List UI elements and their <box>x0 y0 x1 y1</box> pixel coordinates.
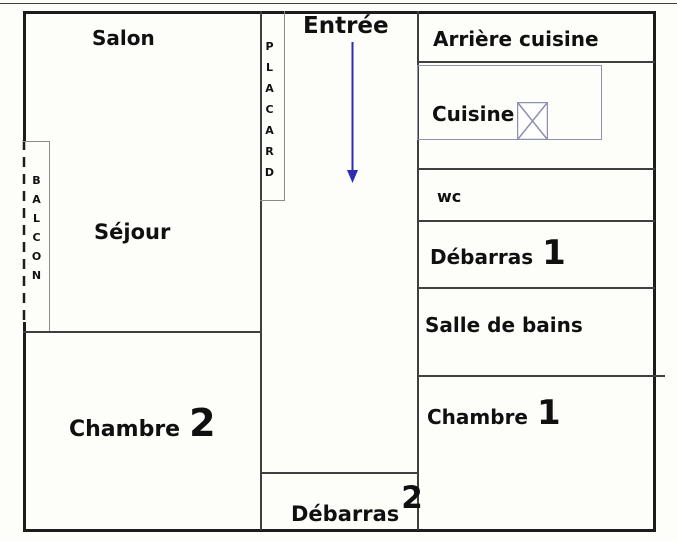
room-label-salle-de-bains: Salle de bains <box>425 315 583 335</box>
floor-plan: Salon Entrée PLACARD BALCON Séjour Chamb… <box>0 0 677 541</box>
room-label-balcon: BALCON <box>31 174 42 296</box>
hallway-left-wall <box>260 11 262 530</box>
room-label-placard: PLACARD <box>264 40 275 210</box>
debarras1-number: 1 <box>542 236 566 270</box>
divider-cuisine-wc <box>417 168 655 170</box>
placard-right-wall <box>284 11 285 201</box>
window-icon <box>517 102 548 140</box>
right-wall <box>653 11 656 531</box>
room-label-salon: Salon <box>92 28 155 48</box>
divider-debarras1-sdb <box>417 287 655 289</box>
debarras2-number: 2 <box>401 483 423 514</box>
room-label-wc: wc <box>437 189 461 205</box>
divider-wc-debarras1 <box>417 220 655 222</box>
chambre1-text: Chambre <box>427 407 528 427</box>
outer-top-line <box>0 3 677 4</box>
room-label-cuisine: Cuisine <box>432 104 514 124</box>
debarras2-top-wall <box>260 472 419 474</box>
divider-sdb-chambre1 <box>417 375 665 377</box>
chambre2-number: 2 <box>189 404 215 442</box>
room-label-debarras1: Débarras 1 <box>430 236 566 270</box>
room-label-arriere-cuisine: Arrière cuisine <box>433 29 599 49</box>
room-label-chambre1: Chambre 1 <box>427 396 561 430</box>
balcony-dashed-edge <box>21 140 27 324</box>
entry-direction-arrow-icon <box>345 42 360 184</box>
room-label-debarras2: Débarras2 <box>291 496 423 527</box>
balcony-inner-wall <box>49 141 50 332</box>
chambre1-number: 1 <box>537 396 561 430</box>
left-wall-upper <box>23 11 26 141</box>
room-label-entree: Entrée <box>303 15 389 38</box>
debarras2-text: Débarras <box>291 502 399 526</box>
divider-arriere-cuisine <box>417 61 655 63</box>
room-label-chambre2: Chambre 2 <box>69 404 216 442</box>
bottom-wall <box>23 529 656 532</box>
balcony-top-edge <box>23 141 50 142</box>
left-wall-lower <box>23 322 26 532</box>
room-label-sejour: Séjour <box>94 222 170 243</box>
chambre2-top-wall <box>23 331 262 333</box>
debarras1-text: Débarras <box>430 247 533 267</box>
chambre2-text: Chambre <box>69 419 180 441</box>
